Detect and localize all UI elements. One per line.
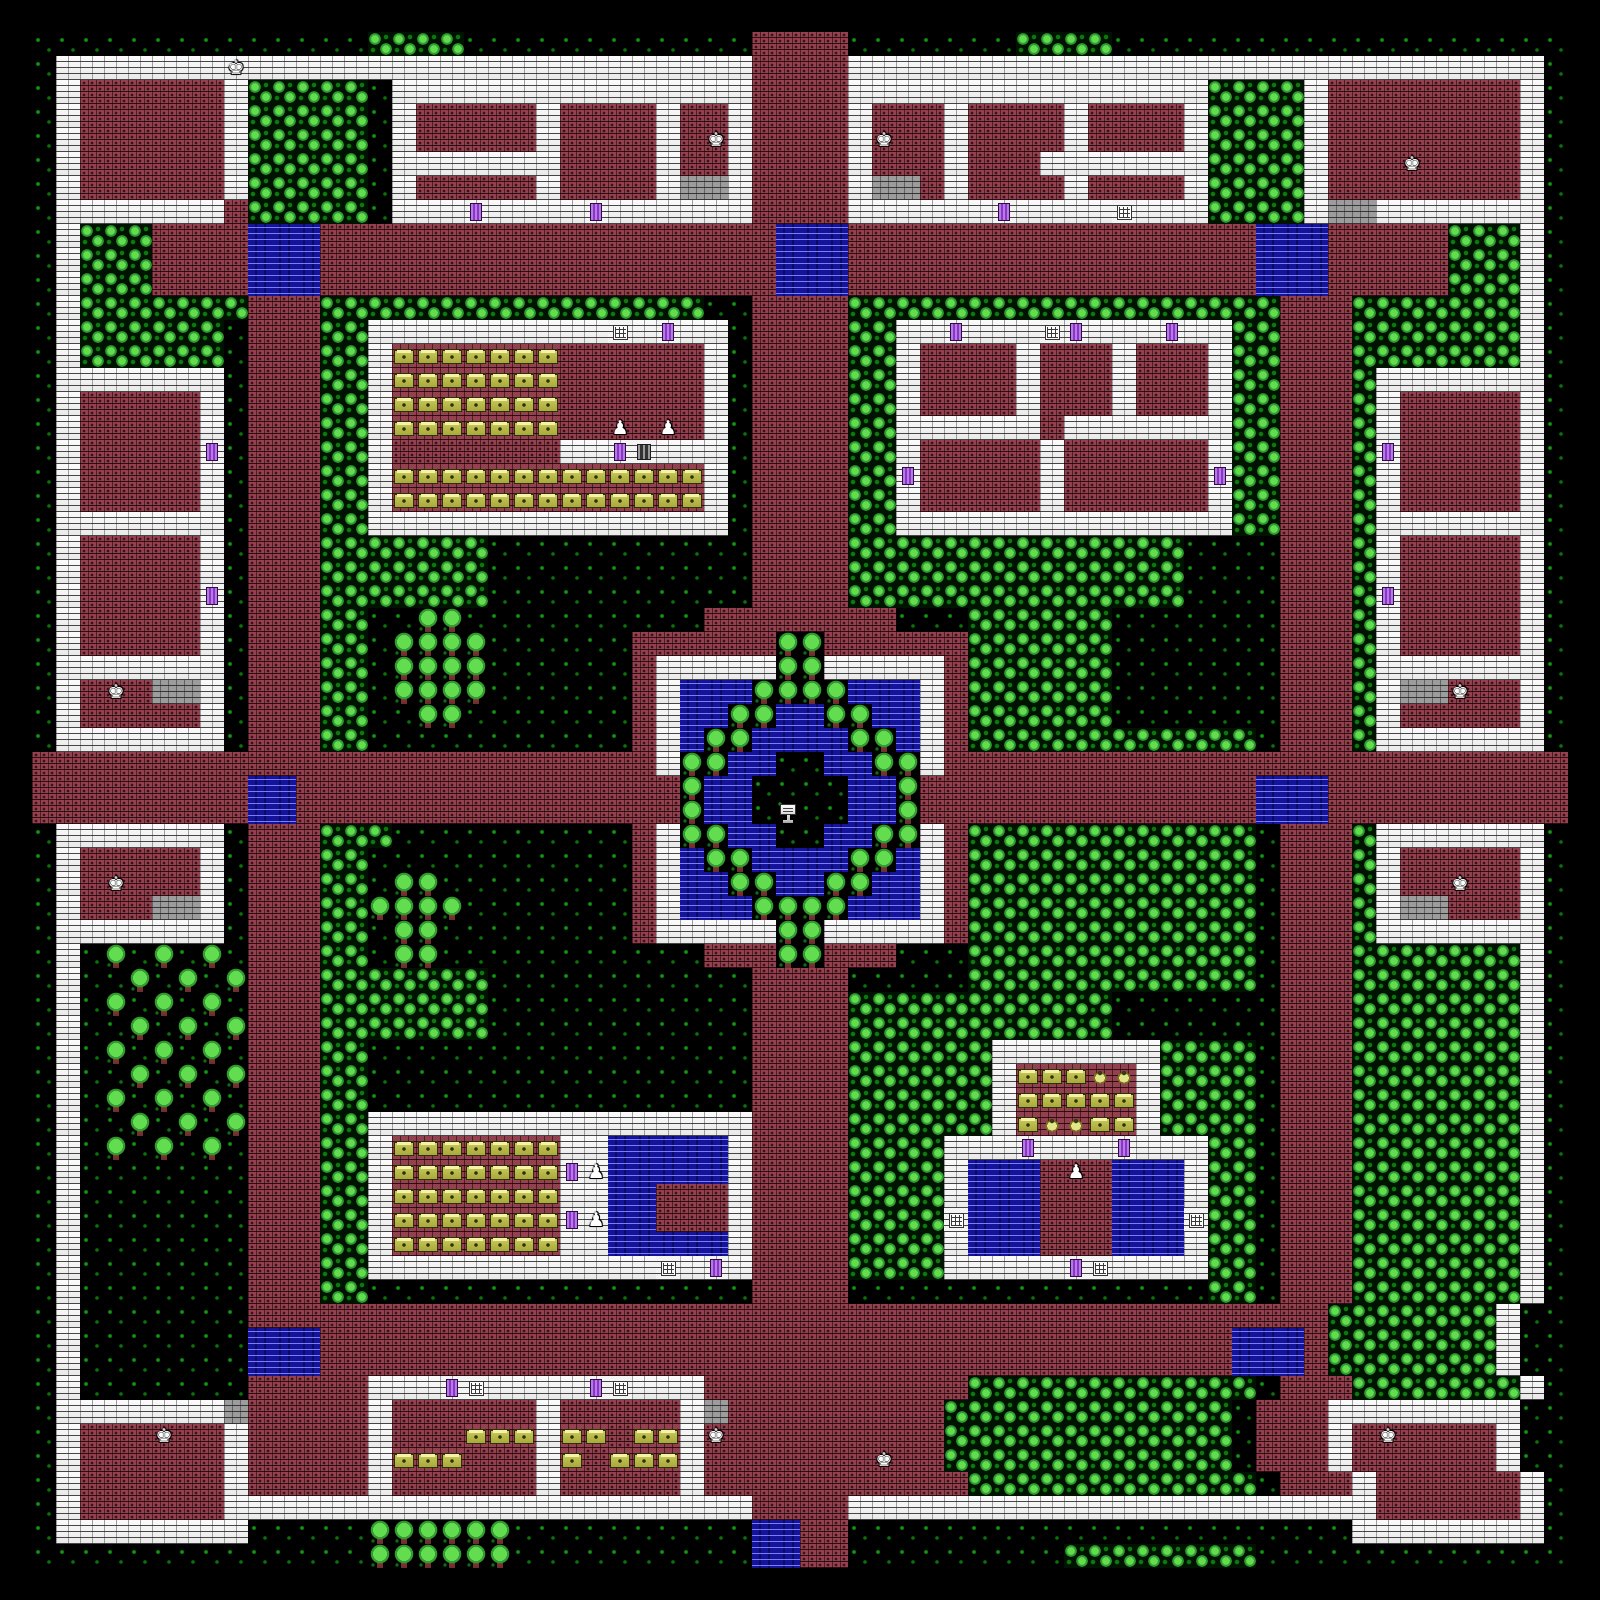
tile-brick-floor <box>1040 752 1064 776</box>
tile-wall <box>728 152 752 176</box>
npc-guard-sprite[interactable]: ♚ <box>224 56 248 80</box>
door[interactable] <box>656 320 680 344</box>
door[interactable] <box>704 1256 728 1280</box>
tile-water <box>248 1328 272 1352</box>
tile-wall <box>392 80 416 104</box>
npc-guard-sprite[interactable]: ♚ <box>704 1424 728 1448</box>
tile-wall <box>1016 416 1040 440</box>
tile-bushes <box>1112 296 1136 320</box>
tile-grass <box>176 1040 200 1064</box>
tile-wall <box>200 464 224 488</box>
tile-bushes <box>1088 728 1112 752</box>
tile-grass <box>128 1136 152 1160</box>
tile-brick-floor <box>440 1400 464 1424</box>
npc-shopkeeper[interactable]: ♟ <box>584 1160 608 1184</box>
tile-bushes <box>344 368 368 392</box>
tile-wall <box>464 1256 488 1280</box>
tile-wall <box>584 56 608 80</box>
tile-brick-floor <box>1448 464 1472 488</box>
tile-grass <box>128 1160 152 1184</box>
tile-grass <box>80 1184 104 1208</box>
npc-shopkeeper-sprite[interactable]: ♟ <box>656 416 680 440</box>
tile-tree <box>680 800 704 824</box>
tile-brick-floor <box>872 1304 896 1328</box>
tile-bushes <box>848 992 872 1016</box>
tile-grass <box>1040 1280 1064 1304</box>
tile-grass <box>464 1064 488 1088</box>
npc-guard[interactable]: ♚ <box>704 1424 728 1448</box>
tile-brick-floor <box>1016 248 1040 272</box>
tile-wall <box>392 152 416 176</box>
tile-brick-floor <box>848 1376 872 1400</box>
tile-brick-floor <box>800 1448 824 1472</box>
town-map[interactable]: ♚♚♚♚♟♟♚♚♚♚♟♟♟♚♚♚♚ <box>32 32 1568 1568</box>
tile-bushes <box>1136 584 1160 608</box>
door[interactable] <box>1112 1136 1136 1160</box>
tile-brick-floor <box>1496 152 1520 176</box>
tile-brick-floor <box>296 1232 320 1256</box>
tile-wall <box>416 512 440 536</box>
tile-water <box>776 728 800 752</box>
tile-bushes <box>1256 128 1280 152</box>
tile-grass <box>1136 1280 1160 1304</box>
tile-brick-floor <box>536 248 560 272</box>
tile-grass <box>656 560 680 584</box>
tile-bushes <box>1088 584 1112 608</box>
shop-table <box>536 488 560 512</box>
tile-brick-floor <box>1208 1304 1232 1328</box>
tile-bushes <box>968 1448 992 1472</box>
tile-wall <box>536 1400 560 1424</box>
tile-wall <box>1040 80 1064 104</box>
tile-brick-floor <box>1016 176 1040 200</box>
door[interactable] <box>440 1376 464 1400</box>
window-grate[interactable] <box>608 1376 632 1400</box>
tile-bushes <box>632 296 656 320</box>
npc-guard-sprite[interactable]: ♚ <box>1400 152 1424 176</box>
npc-guard-sprite[interactable]: ♚ <box>1376 1424 1400 1448</box>
tile-brick-floor <box>128 632 152 656</box>
tile-brick-floor <box>1328 344 1352 368</box>
tile-wall <box>56 896 80 920</box>
tile-water <box>248 272 272 296</box>
npc-shopkeeper[interactable]: ♟ <box>1064 1160 1088 1184</box>
tile-wall <box>1112 1496 1136 1520</box>
tile-water <box>728 896 752 920</box>
tile-brick-floor <box>1328 584 1352 608</box>
tile-brick-floor <box>1088 1352 1112 1376</box>
tile-grass <box>200 1376 224 1400</box>
tile-tree <box>440 1520 464 1544</box>
door[interactable] <box>1376 440 1400 464</box>
tile-grass <box>800 752 824 776</box>
shop-table <box>560 1424 584 1448</box>
tile-brick-floor <box>1280 536 1304 560</box>
npc-shopkeeper[interactable]: ♟ <box>584 1208 608 1232</box>
tile-wall <box>1064 200 1088 224</box>
tile-grass <box>752 776 776 800</box>
door[interactable] <box>560 1208 584 1232</box>
npc-guard[interactable]: ♚ <box>152 1424 176 1448</box>
window-grate[interactable] <box>464 1376 488 1400</box>
tile-water <box>848 680 872 704</box>
tile-brick-floor <box>752 32 776 56</box>
tile-bushes <box>1040 920 1064 944</box>
shop-table <box>416 368 440 392</box>
tile-grass <box>1184 1520 1208 1544</box>
tile-brick-floor <box>1112 128 1136 152</box>
tile-wall <box>368 1496 392 1520</box>
tile-brick-floor <box>1352 800 1376 824</box>
tile-water <box>968 1232 992 1256</box>
npc-guard[interactable]: ♚ <box>1376 1424 1400 1448</box>
npc-guard-sprite[interactable]: ♚ <box>872 128 896 152</box>
tile-brick-floor <box>824 1184 848 1208</box>
tile-grass <box>80 1088 104 1112</box>
tile-wall <box>896 512 920 536</box>
window-grate[interactable] <box>944 1208 968 1232</box>
tile-brick-floor <box>1448 584 1472 608</box>
tile-brick-floor <box>944 848 968 872</box>
npc-guard-sprite[interactable]: ♚ <box>1448 680 1472 704</box>
tile-brick-floor <box>272 656 296 680</box>
tile-bushes <box>1088 1376 1112 1400</box>
tile-wall <box>224 1448 248 1472</box>
tile-brick-floor <box>1064 224 1088 248</box>
tile-wall <box>1112 320 1136 344</box>
tile-bushes <box>1352 1376 1376 1400</box>
tile-bushes <box>344 920 368 944</box>
tile-brick-floor <box>440 272 464 296</box>
tile-brick-floor <box>800 1280 824 1304</box>
tile-brick-floor <box>1184 776 1208 800</box>
tile-bushes <box>1112 896 1136 920</box>
tile-brick-floor <box>824 368 848 392</box>
tile-grass <box>224 1208 248 1232</box>
tile-bushes <box>1208 1208 1232 1232</box>
tile-bushes <box>848 1016 872 1040</box>
tile-brick-floor <box>920 1472 944 1496</box>
tile-wall <box>368 1184 392 1208</box>
tile-bushes <box>1448 1328 1472 1352</box>
tile-wall <box>680 1496 704 1520</box>
tile-brick-floor <box>1400 488 1424 512</box>
tile-grass <box>1088 1520 1112 1544</box>
tile-brick-floor <box>368 800 392 824</box>
tile-brick-floor <box>80 128 104 152</box>
tile-bushes <box>1184 1040 1208 1064</box>
tile-bushes <box>1088 848 1112 872</box>
npc-guard[interactable]: ♚ <box>1400 152 1424 176</box>
tile-brick-floor <box>1304 584 1328 608</box>
tile-brick-floor <box>1040 416 1064 440</box>
tile-brick-floor <box>1280 872 1304 896</box>
tile-tree <box>200 944 224 968</box>
tile-brick-floor <box>968 800 992 824</box>
tile-wall <box>536 128 560 152</box>
tile-grass <box>416 1088 440 1112</box>
tile-brick-floor <box>416 176 440 200</box>
tile-grass <box>1256 1520 1280 1544</box>
tile-wall <box>56 728 80 752</box>
tile-brick-floor <box>920 176 944 200</box>
tile-bushes <box>416 1016 440 1040</box>
tile-water <box>704 800 728 824</box>
door[interactable] <box>560 1160 584 1184</box>
tile-grass <box>1544 488 1568 512</box>
tile-grass <box>1208 560 1232 584</box>
tile-brick-floor <box>80 1472 104 1496</box>
tile-brick-floor <box>848 248 872 272</box>
tile-grass <box>272 1544 296 1568</box>
tile-brick-floor <box>1352 1424 1376 1448</box>
tile-grass <box>872 1520 896 1544</box>
tile-brick-floor <box>656 224 680 248</box>
tile-brick-floor <box>272 320 296 344</box>
tile-bushes <box>1400 1328 1424 1352</box>
tile-bushes <box>1400 1232 1424 1256</box>
tile-grass <box>728 1520 752 1544</box>
tile-brick-floor <box>1304 872 1328 896</box>
tile-grass <box>488 704 512 728</box>
npc-shopkeeper[interactable]: ♟ <box>608 416 632 440</box>
door[interactable] <box>992 200 1016 224</box>
npc-guard[interactable]: ♚ <box>704 128 728 152</box>
tile-wall <box>224 1496 248 1520</box>
window-grate[interactable] <box>608 320 632 344</box>
tile-bushes <box>416 560 440 584</box>
tile-bushes <box>1040 824 1064 848</box>
window-grate[interactable] <box>1088 1256 1112 1280</box>
tile-wall <box>56 584 80 608</box>
npc-guard[interactable]: ♚ <box>224 56 248 80</box>
tile-bushes <box>1352 392 1376 416</box>
door[interactable] <box>200 440 224 464</box>
tile-brick-floor <box>272 704 296 728</box>
tile-grass <box>1232 704 1256 728</box>
tile-grass <box>56 32 80 56</box>
tile-wall <box>1184 152 1208 176</box>
door[interactable] <box>1160 320 1184 344</box>
window-grate[interactable] <box>1112 200 1136 224</box>
tile-brick-floor <box>800 536 824 560</box>
tile-bushes <box>440 32 464 56</box>
door[interactable] <box>584 200 608 224</box>
tile-grass <box>1544 1352 1568 1376</box>
shop-table <box>512 464 536 488</box>
tile-water <box>896 848 920 872</box>
door[interactable] <box>1208 464 1232 488</box>
npc-shopkeeper-sprite[interactable]: ♟ <box>584 1208 608 1232</box>
tile-brick-floor <box>152 488 176 512</box>
window-grate[interactable] <box>1184 1208 1208 1232</box>
npc-guard-sprite[interactable]: ♚ <box>704 128 728 152</box>
door[interactable] <box>584 1376 608 1400</box>
tile-grass <box>1256 1232 1280 1256</box>
tile-grass <box>704 992 728 1016</box>
npc-guard[interactable]: ♚ <box>1448 680 1472 704</box>
sign-fountain[interactable] <box>776 800 800 824</box>
tile-bushes <box>1472 1088 1496 1112</box>
tile-bushes <box>1088 680 1112 704</box>
tile-grass <box>536 536 560 560</box>
tile-grass <box>32 920 56 944</box>
tile-wall <box>488 1496 512 1520</box>
tile-brick-floor <box>1448 152 1472 176</box>
tile-grass <box>32 512 56 536</box>
tile-bushes <box>176 320 200 344</box>
tile-wall <box>944 56 968 80</box>
tile-bushes <box>1400 1304 1424 1328</box>
tile-grass <box>488 1280 512 1304</box>
door[interactable] <box>944 320 968 344</box>
door[interactable] <box>608 440 632 464</box>
tile-grass <box>1184 536 1208 560</box>
tile-brick-floor <box>560 800 584 824</box>
tile-water <box>680 848 704 872</box>
tile-bushes <box>944 296 968 320</box>
tile-brick-floor <box>176 776 200 800</box>
tile-wall <box>560 512 584 536</box>
tile-wall <box>1352 1400 1376 1424</box>
tile-brick-floor <box>632 680 656 704</box>
tile-grass <box>392 1064 416 1088</box>
tile-wall <box>152 920 176 944</box>
tile-brick-floor <box>1040 272 1064 296</box>
tile-wall <box>944 1136 968 1160</box>
tile-brick-floor <box>392 272 416 296</box>
tile-tree <box>392 632 416 656</box>
tile-grass <box>1544 368 1568 392</box>
tile-wall <box>1064 56 1088 80</box>
tile-bushes <box>1472 296 1496 320</box>
tile-grass <box>560 536 584 560</box>
window-grate[interactable] <box>1040 320 1064 344</box>
tile-grass <box>32 1448 56 1472</box>
tile-grass <box>104 1256 128 1280</box>
tile-brick-floor <box>80 80 104 104</box>
tile-brick-floor <box>296 344 320 368</box>
tile-brick-floor <box>1400 272 1424 296</box>
door[interactable] <box>1064 320 1088 344</box>
tile-grass <box>392 608 416 632</box>
npc-shopkeeper-sprite[interactable]: ♟ <box>584 1160 608 1184</box>
tile-bushes <box>1376 1064 1400 1088</box>
tile-grass <box>224 1136 248 1160</box>
tile-grass <box>584 584 608 608</box>
tile-grass <box>848 1544 872 1568</box>
tile-wall <box>1520 608 1544 632</box>
tile-brick-floor <box>1352 752 1376 776</box>
tile-brick-floor <box>416 248 440 272</box>
tile-grass <box>680 944 704 968</box>
tile-bushes <box>1424 1232 1448 1256</box>
tile-brick-floor <box>560 152 584 176</box>
npc-guard-sprite[interactable]: ♚ <box>1448 872 1472 896</box>
tile-water <box>752 1520 776 1544</box>
npc-guard[interactable]: ♚ <box>104 680 128 704</box>
door[interactable] <box>1064 1256 1088 1280</box>
tile-brick-floor <box>752 512 776 536</box>
window-grate[interactable] <box>656 1256 680 1280</box>
door[interactable] <box>200 584 224 608</box>
tile-bushes <box>1472 272 1496 296</box>
tile-grass <box>536 968 560 992</box>
tile-brick-floor <box>248 488 272 512</box>
tile-bushes <box>1400 1376 1424 1400</box>
tile-brick-floor <box>1208 272 1232 296</box>
npc-guard-sprite[interactable]: ♚ <box>872 1448 896 1472</box>
tile-bushes <box>200 296 224 320</box>
tile-brick-floor <box>920 152 944 176</box>
npc-shopkeeper-sprite[interactable]: ♟ <box>608 416 632 440</box>
door[interactable] <box>464 200 488 224</box>
tile-grass <box>560 920 584 944</box>
tile-grass <box>1544 824 1568 848</box>
door[interactable] <box>896 464 920 488</box>
tile-brick-floor <box>128 1496 152 1520</box>
tile-brick-floor <box>1304 344 1328 368</box>
tile-wall <box>1520 512 1544 536</box>
tile-grass <box>80 1208 104 1232</box>
tile-brick-floor <box>728 632 752 656</box>
npc-guard[interactable]: ♚ <box>1448 872 1472 896</box>
npc-guard[interactable]: ♚ <box>872 1448 896 1472</box>
tile-brick-floor <box>440 224 464 248</box>
tile-passage <box>152 896 176 920</box>
tile-wall <box>632 200 656 224</box>
tile-wall <box>1016 368 1040 392</box>
tile-grass <box>32 104 56 128</box>
tile-grass <box>1544 128 1568 152</box>
tile-brick-floor <box>1400 608 1424 632</box>
tile-wall <box>1376 392 1400 416</box>
tile-bushes <box>1088 1424 1112 1448</box>
npc-shopkeeper-sprite[interactable]: ♟ <box>1064 1160 1088 1184</box>
tile-wall <box>1376 920 1400 944</box>
tile-bushes <box>992 728 1016 752</box>
tile-brick-floor <box>248 896 272 920</box>
npc-guard-sprite[interactable]: ♚ <box>104 872 128 896</box>
grate-door[interactable] <box>632 440 656 464</box>
tile-brick-floor <box>1088 272 1112 296</box>
npc-shopkeeper[interactable]: ♟ <box>656 416 680 440</box>
npc-guard[interactable]: ♚ <box>104 872 128 896</box>
tile-brick-floor <box>536 752 560 776</box>
tile-brick-floor <box>824 1232 848 1256</box>
tile-brick-floor <box>944 368 968 392</box>
tile-brick-floor <box>1136 224 1160 248</box>
tile-brick-floor <box>992 1352 1016 1376</box>
tile-grass <box>1256 1064 1280 1088</box>
door[interactable] <box>1016 1136 1040 1160</box>
tile-bushes <box>1448 1040 1472 1064</box>
tile-wall <box>440 200 464 224</box>
tile-brick-floor <box>800 296 824 320</box>
door[interactable] <box>1376 584 1400 608</box>
tile-brick-floor <box>80 752 104 776</box>
tile-grass <box>728 1280 752 1304</box>
npc-guard-sprite[interactable]: ♚ <box>104 680 128 704</box>
tile-brick-floor <box>1304 1016 1328 1040</box>
tile-brick-floor <box>1184 1352 1208 1376</box>
tile-wall <box>1112 368 1136 392</box>
tile-wall <box>1160 200 1184 224</box>
tile-wall <box>1328 1448 1352 1472</box>
tile-bushes <box>320 1136 344 1160</box>
npc-guard[interactable]: ♚ <box>872 128 896 152</box>
npc-guard-sprite[interactable]: ♚ <box>152 1424 176 1448</box>
